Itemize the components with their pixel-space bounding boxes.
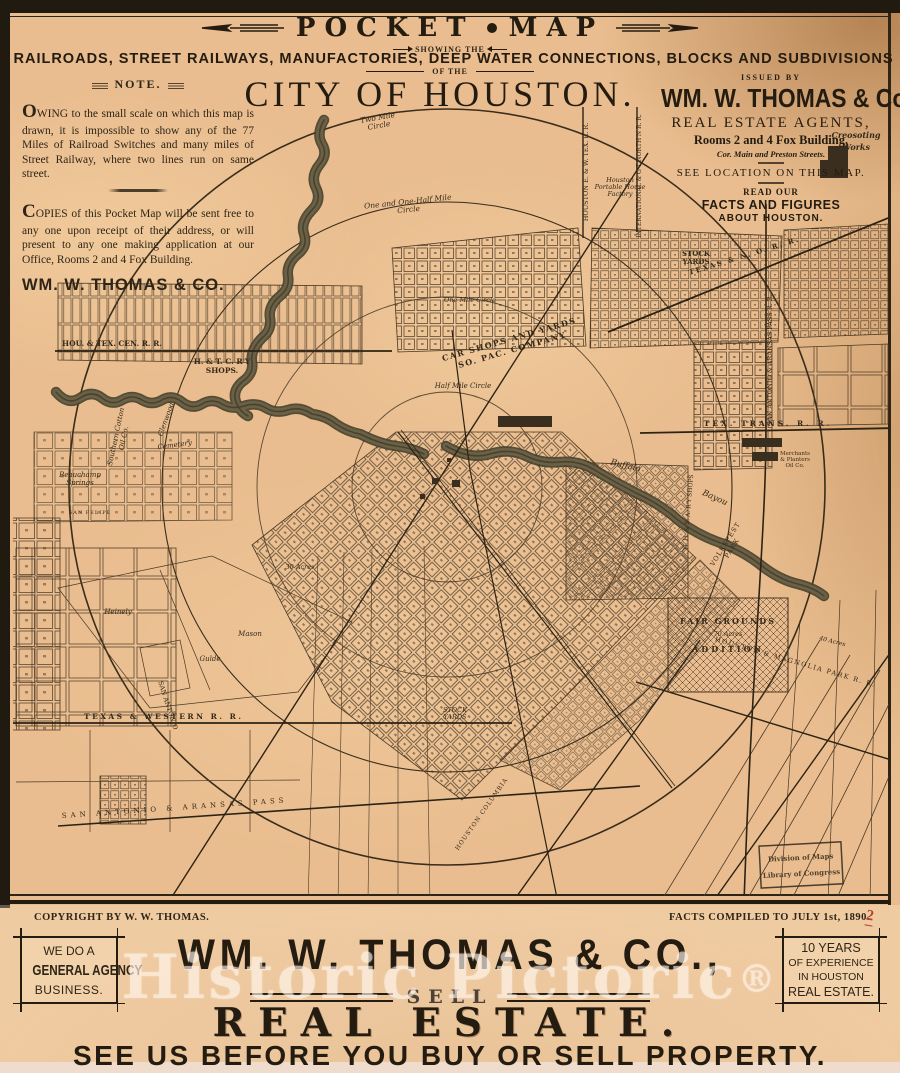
map-label-merchants-planters: Merchants& PlantersOil Co. (780, 451, 810, 469)
map-label-30-acres: 30 Acres (286, 563, 316, 571)
map-label-htc-shops: H. & T. C. R'YSHOPS. (194, 357, 251, 375)
note-signature: WM. W. THOMAS & CO. (22, 275, 247, 295)
note-paragraph-1: OWING to the small scale on which this m… (22, 100, 254, 182)
ad-tagline: SEE US BEFORE YOU BUY OR SELL PROPERTY. (0, 1040, 900, 1072)
map-label-sa-aransas-vertical: SAN ANTONIO & ARANSAS PASS R. R. (766, 294, 774, 425)
stamp-line-1: Division of Maps (768, 851, 834, 863)
issuer-rooms-line: Rooms 2 and 4 Fox Building, (646, 133, 896, 148)
map-label-stock-yards-west: STOCKYARDS (443, 706, 468, 721)
note-paragraph-2: COPIES of this Pocket Map will be sent f… (22, 200, 254, 267)
map-label-bayou: Bayou (700, 488, 729, 508)
note-title-row: NOTE. (22, 77, 254, 92)
note-block: NOTE. OWING to the small scale on which … (22, 77, 254, 295)
map-label-gulde: Gulde (200, 655, 221, 663)
historic-houston-map-sheet: { "header": { "title_left": "POCKET", "t… (0, 0, 900, 1073)
city-block-grids (4, 224, 888, 824)
left-flourish-ornament (200, 21, 286, 35)
map-title-pocket: POCKET (296, 13, 475, 43)
issuer-divider-2 (758, 182, 784, 184)
map-title-map: MAP (509, 13, 605, 43)
map-label-fair-grounds: FAIR GROUNDS (680, 616, 776, 626)
about-houston-label: ABOUT HOUSTON. (646, 213, 896, 224)
rule-right (476, 71, 534, 72)
copyright-line: COPYRIGHT BY W. W. THOMAS. (34, 912, 209, 923)
facts-compiled-line: FACTS COMPILED TO JULY 1st, 1890. (540, 912, 870, 923)
see-location-line: SEE LOCATION ON THIS MAP. (646, 167, 896, 179)
issuer-company-name: WM. W. THOMAS & Co., (661, 83, 881, 114)
map-label-hou-tex-cen: HOU. & TEX. CEN. R. R. (62, 339, 162, 348)
issuer-agents-line: REAL ESTATE AGENTS, (646, 115, 896, 132)
facts-and-figures-label: FACTS AND FIGURES (646, 198, 896, 212)
map-label-volksfest-park: VOLKSFESTPARK (708, 520, 749, 572)
note-title: NOTE. (114, 77, 161, 92)
map-subtitle: RAILROADS, STREET RAILWAYS, MANUFACTORIE… (14, 50, 887, 67)
map-label-one-mile-circle: One Mile Circle (444, 296, 496, 304)
left-box-line-3: BUSINESS. (22, 983, 116, 997)
map-label-half-mile-circle: Half Mile Circle (434, 382, 492, 390)
title-ornament-dot (487, 23, 497, 33)
ad-company-name: WM. W. THOMAS & CO., (36, 931, 864, 980)
map-label-one-half-mile-circle: One and One-Half MileCircle (364, 192, 454, 218)
issued-by-label: ISSUED BY (646, 73, 896, 82)
right-box-line-4: REAL ESTATE. (784, 985, 878, 999)
note-divider (108, 189, 168, 192)
map-label-texas-western: TEXAS & WESTERN R. R. (84, 712, 243, 721)
rule-left (366, 71, 424, 72)
issuer-divider-1 (758, 162, 784, 164)
map-label-fair-acres: 70 Acres (714, 630, 744, 638)
map-label-heinely: Heinely (103, 608, 132, 616)
note-ornament-right (168, 81, 184, 89)
issuer-corner-line: Cor. Main and Preston Streets. (646, 149, 896, 159)
read-our-label: READ OUR (646, 187, 896, 197)
map-label-houston-ew-tex: HOUSTON E. & W. TEX. R. R. (582, 123, 590, 222)
map-label-san-felipe: SAN FELIPE (69, 510, 111, 516)
map-label-international-gn: INTERNATIONAL & G'T NORTH'N R. R. (636, 114, 643, 238)
map-label-mason: Mason (237, 630, 262, 638)
map-label-fair-addition: ADDITION (691, 644, 764, 654)
map-label-sa-aransas-pass: SAN ANTONIO & ARANSAS PASS (62, 796, 288, 820)
map-label-40-acres: 40 Acres (818, 635, 847, 649)
note-ornament-left (92, 81, 108, 89)
map-title-row: POCKET MAP (0, 13, 900, 43)
right-flourish-ornament (614, 21, 700, 35)
issuer-block: ISSUED BY WM. W. THOMAS & Co., REAL ESTA… (646, 73, 896, 224)
